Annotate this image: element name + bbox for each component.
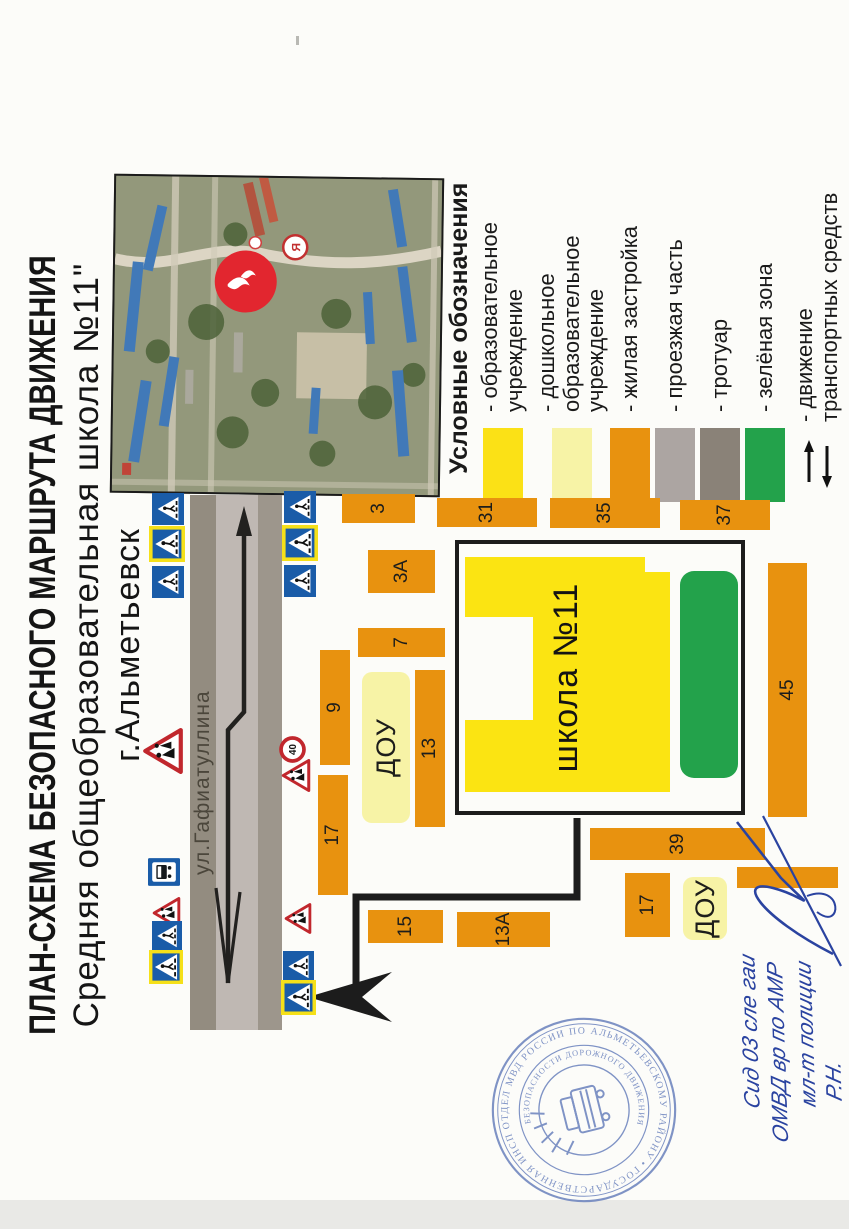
scanned-route-plan-sheet: ПЛАН-СХЕМА БЕЗОПАСНОГО МАРШРУТА ДВИЖЕНИЯ… — [0, 0, 849, 1200]
svg-text:40: 40 — [288, 744, 299, 755]
building-13А: 13А — [457, 912, 550, 947]
school-crossing-sign — [281, 980, 316, 1015]
bus-stop-sign — [148, 858, 180, 886]
legend-label-education: - образовательное учреждение — [478, 177, 527, 412]
legend-dark-gray-swatch — [700, 428, 740, 502]
legend-yellow-swatch — [483, 428, 523, 502]
legend-label-roadway: - проезжая часть — [663, 177, 688, 412]
svg-text:Я: Я — [289, 243, 303, 252]
building-37: 37 — [680, 500, 770, 530]
page-subtitle: Средняя общеобразовательная школа №11" — [67, 90, 107, 1200]
pedestrian-crossing-sign — [284, 565, 316, 597]
children-warning-sign — [284, 903, 312, 934]
pedestrian-crossing-sign — [152, 566, 184, 598]
legend-row-preschool: - дошкольное образовательное учреждение — [535, 177, 609, 502]
building-31: 31 — [437, 498, 537, 527]
preschool-building: ДОУ — [362, 672, 410, 823]
school-crossing-sign — [282, 525, 318, 561]
handwriting-line-4: Р.Н. — [820, 1057, 848, 1103]
legend-gray-swatch — [655, 428, 695, 502]
green-zone-area — [680, 571, 738, 778]
pedestrian-crossing-sign — [152, 493, 184, 525]
legend-green-swatch — [745, 428, 785, 502]
school-name-label: школа №11 — [547, 544, 586, 811]
handwriting-line-3: мл-т полиции — [790, 958, 821, 1109]
building-17: 17 — [318, 775, 348, 895]
pedestrian-crossing-sign — [152, 921, 182, 951]
scan-artifact — [296, 36, 299, 45]
handwriting-line-2: ОМВД вр по АМР — [762, 960, 794, 1146]
signature-flourish — [721, 804, 849, 974]
legend-pale-yellow-swatch — [552, 428, 592, 502]
legend-label-housing: - жилая застройка — [618, 177, 643, 412]
legend-row-education: - образовательное учреждение — [478, 177, 527, 502]
building-17: 17 — [625, 873, 670, 937]
satellite-imagery: Я — [112, 176, 442, 496]
building-9: 9 — [320, 650, 350, 765]
legend-label-traffic: - движение транспортных средств — [793, 187, 842, 422]
pedestrian-crossing-sign — [283, 951, 314, 982]
handwriting-line-1: Сид 03 сле гаи — [734, 951, 766, 1111]
school-crossing-sign — [149, 526, 185, 562]
legend-row-roadway: - проезжая часть — [655, 177, 695, 502]
speed-limit-40-sign: 40 — [279, 736, 306, 763]
building-7: 7 — [358, 628, 445, 657]
route-arrowhead — [308, 972, 392, 1022]
two-way-arrows-icon — [796, 438, 840, 490]
legend-label-sidewalk: - тротуар — [708, 177, 733, 412]
handwritten-approval: Сид 03 сле гаиОМВД вр по АМРмл-т полиции… — [733, 810, 849, 1170]
legend-label-green-zone: - зелёная зона — [753, 177, 778, 412]
children-warning-sign — [281, 759, 311, 792]
road-gafiatullina: ул.Гафиатуллина — [190, 495, 282, 1030]
school-building-crossbar2 — [599, 572, 670, 617]
legend: Условные обозначения - образовательное у… — [445, 162, 849, 502]
legend-orange-swatch — [610, 428, 650, 502]
building-35: 35 — [550, 498, 660, 528]
traffic-direction-arrows — [190, 495, 282, 1030]
secondary-map-marker: Я — [283, 235, 307, 259]
legend-row-housing: - жилая застройка — [610, 177, 650, 502]
building-13: 13 — [415, 670, 445, 827]
school-plot: школа №11 — [455, 540, 745, 815]
legend-row-sidewalk: - тротуар — [700, 177, 740, 502]
school-crossing-sign — [149, 950, 183, 984]
legend-row-traffic: - движение транспортных средств — [793, 187, 842, 502]
page-title: ПЛАН-СХЕМА БЕЗОПАСНОГО МАРШРУТА ДВИЖЕНИЯ — [22, 212, 64, 1078]
building-45: 45 — [768, 563, 807, 817]
police-stamp: ОТДЕЛ МВД РОССИИ ПО АЛЬМЕТЬЕВСКОМУ РАЙОН… — [465, 991, 703, 1229]
legend-row-green-zone: - зелёная зона — [745, 177, 785, 502]
legend-heading: Условные обозначения — [445, 183, 474, 474]
building-15: 15 — [368, 910, 443, 943]
building-3: 3 — [342, 494, 415, 523]
children-warning-sign — [142, 728, 184, 774]
satellite-photo: Я — [110, 174, 444, 498]
pedestrian-crossing-sign — [284, 491, 316, 523]
legend-label-preschool: - дошкольное образовательное учреждение — [535, 177, 609, 412]
building-3А: 3А — [368, 550, 435, 593]
